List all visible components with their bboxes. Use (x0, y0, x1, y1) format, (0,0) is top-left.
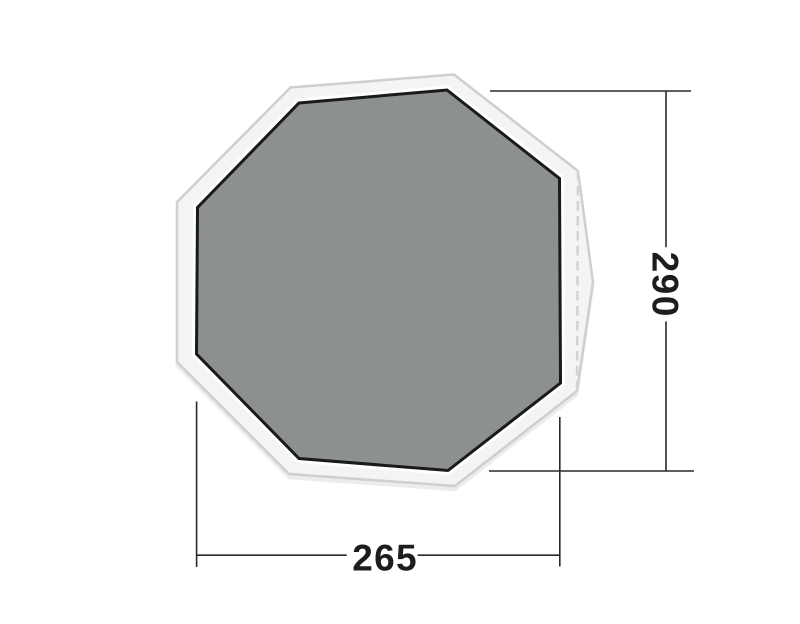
svg-text:290: 290 (645, 252, 686, 318)
svg-text:265: 265 (352, 537, 418, 578)
